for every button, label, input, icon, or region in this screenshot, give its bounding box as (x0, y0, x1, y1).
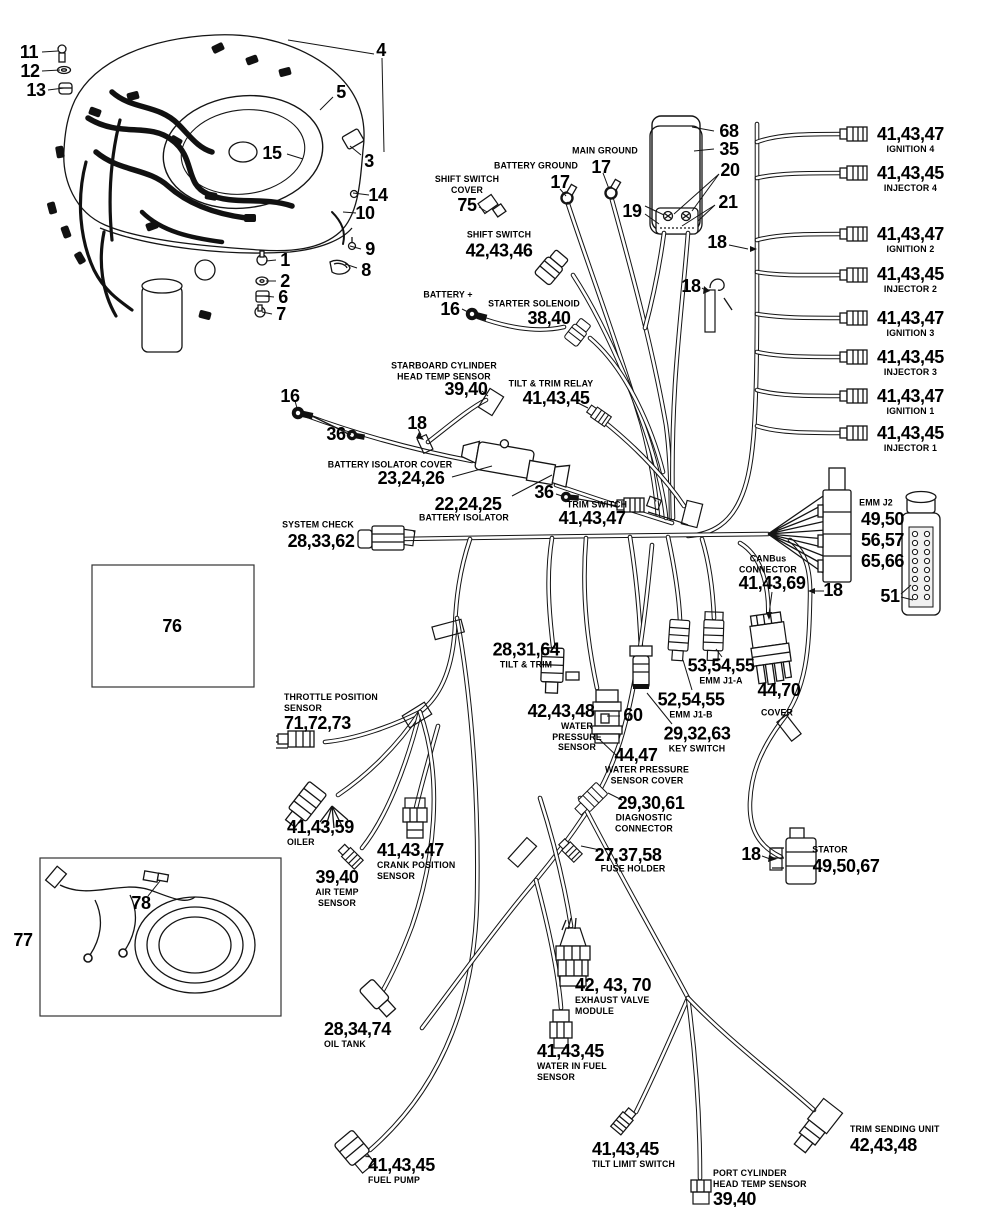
exhaust-valve-module-name: EXHAUST VALVE MODULE (575, 995, 651, 1016)
trim-switch-num: 41,43,47 (559, 508, 626, 528)
shift-switch-num: 42,43,46 (466, 240, 533, 260)
shift-switch-cover-num: 75 (435, 196, 499, 216)
callout-11: 11 (20, 42, 38, 62)
ignition-3-num: 41,43,47 (877, 308, 944, 328)
oil-tank-num: 28,34,74 (324, 1019, 391, 1039)
battery-isolator-cover-num: 23,24,26 (378, 468, 445, 488)
throttle-position-num: 71,72,73 (284, 713, 378, 733)
oil-tank-name: OIL TANK (324, 1039, 391, 1050)
port-head-temp-num: 39,40 (713, 1189, 807, 1207)
ignition-4-num: 41,43,47 (877, 124, 944, 144)
tilt-limit-name: TILT LIMIT SWITCH (592, 1159, 675, 1170)
stator-name: STATOR (812, 845, 848, 856)
water-in-fuel-num: 41,43,45 (537, 1041, 607, 1061)
label-key-switch: 29,32,63KEY SWITCH (664, 724, 731, 755)
label-shift-switch-cover: SHIFT SWITCH COVER 75 (435, 174, 499, 216)
label-exhaust-valve-module: 42, 43, 70EXHAUST VALVE MODULE (575, 975, 651, 1017)
trim-sending-name: TRIM SENDING UNIT (850, 1124, 940, 1135)
injector-3-name: INJECTOR 3 (877, 367, 944, 378)
callout-18-stator: 18 (741, 844, 760, 864)
label-oiler: 41,43,59OILER (287, 817, 354, 848)
fuse-holder-num: 27,37,58 (595, 845, 662, 865)
oiler-num: 41,43,59 (287, 817, 354, 837)
label-fuel-pump: 41,43,45FUEL PUMP (368, 1155, 435, 1186)
callout-60: 60 (623, 705, 642, 725)
exhaust-valve-module-num: 42, 43, 70 (575, 975, 651, 995)
shift-switch-name: SHIFT SWITCH (466, 230, 533, 241)
diagnostic-name: DIAGNOSTIC CONNECTOR (615, 812, 673, 833)
throttle-position-name: THROTTLE POSITION SENSOR (284, 692, 378, 713)
callout-15: 15 (262, 143, 281, 163)
water-pressure-cover-num: 44,47 (614, 745, 657, 765)
water-in-fuel-name: WATER IN FUEL SENSOR (537, 1061, 607, 1082)
engine-assembly-illustration (42, 35, 384, 352)
callout-19: 19 (622, 201, 641, 221)
battery-cable-loom (645, 116, 719, 234)
emm-j1b-name: EMM J1-B (658, 710, 725, 721)
main-ground-num: 17 (591, 157, 610, 177)
callout-9: 9 (365, 239, 375, 259)
callout-8: 8 (361, 260, 371, 280)
label-air-temp: 39,40AIR TEMP SENSOR (315, 867, 358, 909)
callout-12: 12 (20, 61, 39, 81)
water-pressure-num: 42,43,48 (528, 701, 595, 721)
tilt-trim-name: TILT & TRIM (493, 660, 560, 671)
callout-18-emm: 18 (823, 580, 842, 600)
callout-35: 35 (719, 139, 738, 159)
battery-ground-name: BATTERY GROUND (494, 161, 578, 172)
label-injector-4: 41,43,45INJECTOR 4 (877, 163, 944, 194)
callout-76: 76 (162, 616, 181, 636)
harness-line-art (0, 0, 1000, 1207)
cover-name: COVER (761, 708, 793, 719)
tilt-trim-relay-num: 41,43,45 (523, 388, 590, 408)
canbus-num: 41,43,69 (739, 573, 806, 593)
emm-j2-num: 49,50 56,57 65,66 (861, 509, 904, 572)
water-pressure-name: WATER PRESSURE SENSOR (552, 721, 602, 753)
ignition-1-num: 41,43,47 (877, 386, 944, 406)
callout-51: 51 (880, 586, 899, 606)
ignition-2-num: 41,43,47 (877, 224, 944, 244)
label-tilt-limit: 41,43,45TILT LIMIT SWITCH (592, 1139, 675, 1170)
starboard-head-temp-num: 39,40 (444, 379, 487, 399)
ignition-4-name: IGNITION 4 (877, 144, 944, 155)
emm-j2-name: EMM J2 (859, 498, 893, 509)
fuse-holder-name: FUSE HOLDER (601, 864, 666, 875)
trim-sending-num: 42,43,48 (850, 1135, 940, 1155)
tilt-limit-num: 41,43,45 (592, 1139, 675, 1159)
label-shift-switch: SHIFT SWITCH 42,43,46 (466, 230, 533, 261)
label-crank-position: 41,43,47CRANK POSITION SENSOR (377, 840, 455, 882)
starter-solenoid-num: 38,40 (527, 308, 570, 328)
callout-18-trunk: 18 (707, 232, 726, 252)
emm-j1a-name: EMM J1-A (688, 676, 755, 687)
injector-4-name: INJECTOR 4 (877, 183, 944, 194)
fuel-pump-num: 41,43,45 (368, 1155, 435, 1175)
battery-isolator-name: BATTERY ISOLATOR (419, 513, 509, 524)
label-injector-1: 41,43,45INJECTOR 1 (877, 423, 944, 454)
diagnostic-num: 29,30,61 (618, 793, 685, 813)
label-ignition-2: 41,43,47IGNITION 2 (877, 224, 944, 255)
ignition-2-name: IGNITION 2 (877, 244, 944, 255)
ignition-1-name: IGNITION 1 (877, 406, 944, 417)
injector-3-num: 41,43,45 (877, 347, 944, 367)
retainer-clip-18 (705, 279, 732, 332)
system-check-num: 28,33,62 (288, 531, 355, 551)
fuel-pump-name: FUEL PUMP (368, 1175, 435, 1186)
inset-box-77-cable (40, 858, 281, 1016)
cover-num: 44,70 (757, 680, 800, 700)
stator-num: 49,50,67 (813, 856, 880, 876)
callout-13: 13 (26, 80, 45, 100)
emm-j1a-num: 53,54,55 (688, 656, 755, 676)
oiler-name: OILER (287, 837, 354, 848)
label-water-in-fuel: 41,43,45WATER IN FUEL SENSOR (537, 1041, 607, 1083)
callout-77: 77 (13, 930, 32, 950)
water-pressure-cover-name: WATER PRESSURE SENSOR COVER (605, 764, 689, 785)
tilt-trim-num: 28,31,64 (493, 640, 560, 660)
label-ignition-3: 41,43,47IGNITION 3 (877, 308, 944, 339)
callout-4: 4 (376, 40, 386, 60)
callout-16-isolator: 16 (280, 386, 299, 406)
injector-1-name: INJECTOR 1 (877, 443, 944, 454)
label-emm-j1b: 52,54,55EMM J1-B (658, 690, 725, 721)
key-switch-name: KEY SWITCH (664, 744, 731, 755)
battery-isolator-num: 22,24,25 (435, 494, 502, 514)
key-switch-num: 29,32,63 (664, 724, 731, 744)
air-temp-num: 39,40 (315, 867, 358, 887)
wiring-harness-parts-diagram: 11 12 13 4 5 15 3 14 10 9 8 1 2 6 7 SHIF… (0, 0, 1000, 1207)
callout-78: 78 (131, 893, 150, 913)
crank-position-name: CRANK POSITION SENSOR (377, 860, 455, 881)
callout-21: 21 (718, 192, 737, 212)
main-ground-name: MAIN GROUND (572, 146, 638, 157)
air-temp-name: AIR TEMP SENSOR (315, 887, 358, 908)
callout-3: 3 (364, 151, 374, 171)
crank-position-num: 41,43,47 (377, 840, 455, 860)
battery-plus-num: 16 (440, 299, 459, 319)
battery-ground-num: 17 (550, 172, 569, 192)
label-ignition-1: 41,43,47IGNITION 1 (877, 386, 944, 417)
callout-7: 7 (276, 304, 286, 324)
label-trim-sending: TRIM SENDING UNIT42,43,48 (850, 1124, 940, 1155)
callout-1: 1 (280, 250, 290, 270)
label-port-head-temp: PORT CYLINDER HEAD TEMP SENSOR39,40 (713, 1168, 807, 1207)
label-injector-2: 41,43,45INJECTOR 2 (877, 264, 944, 295)
label-injector-3: 41,43,45INJECTOR 3 (877, 347, 944, 378)
callout-36-b: 36 (534, 482, 553, 502)
port-head-temp-name: PORT CYLINDER HEAD TEMP SENSOR (713, 1168, 807, 1189)
injector-2-num: 41,43,45 (877, 264, 944, 284)
callout-10: 10 (355, 203, 374, 223)
injector-4-num: 41,43,45 (877, 163, 944, 183)
label-oil-tank: 28,34,74OIL TANK (324, 1019, 391, 1050)
callout-36-a: 36 (326, 424, 345, 444)
label-tilt-trim: 28,31,64TILT & TRIM (493, 640, 560, 671)
callout-20: 20 (720, 160, 739, 180)
system-check-name: SYSTEM CHECK (282, 520, 354, 531)
callout-18-clip: 18 (681, 276, 700, 296)
label-ignition-4: 41,43,47IGNITION 4 (877, 124, 944, 155)
canbus-name: CANBus CONNECTOR (739, 553, 797, 574)
label-throttle-position: THROTTLE POSITION SENSOR71,72,73 (284, 692, 378, 734)
callout-5: 5 (336, 82, 346, 102)
emm-j1b-num: 52,54,55 (658, 690, 725, 710)
injector-1-num: 41,43,45 (877, 423, 944, 443)
ignition-3-name: IGNITION 3 (877, 328, 944, 339)
label-emm-j1a: 53,54,55EMM J1-A (688, 656, 755, 687)
shift-switch-cover-name: SHIFT SWITCH COVER (435, 174, 499, 195)
injector-2-name: INJECTOR 2 (877, 284, 944, 295)
callout-18-clamp: 18 (407, 413, 426, 433)
